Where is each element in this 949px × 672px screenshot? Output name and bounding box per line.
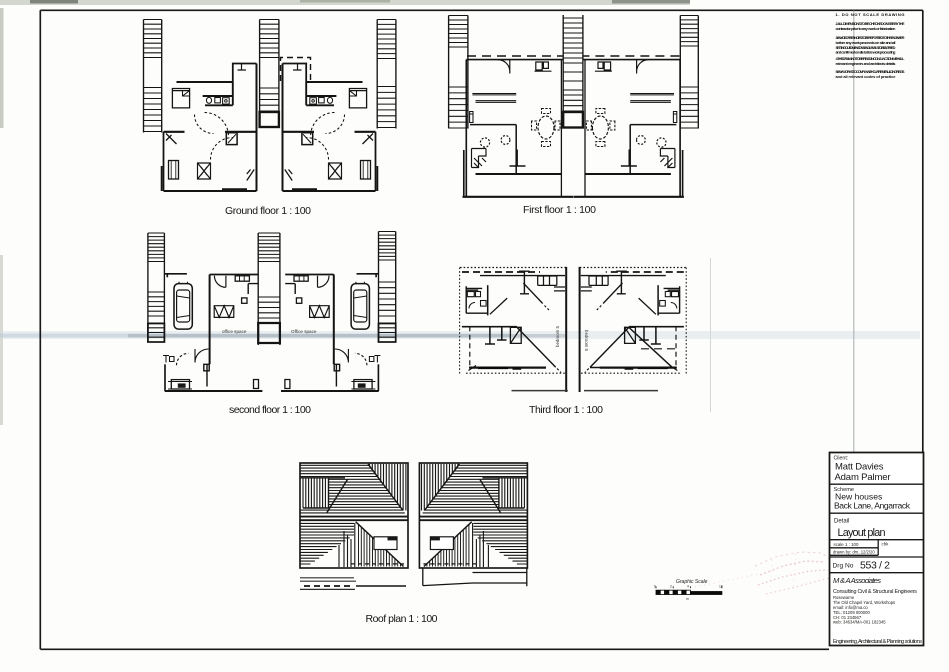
svg-text:Drg No: Drg No: [833, 563, 854, 570]
svg-text:Ground floor 1 : 100: Ground floor 1 : 100: [225, 205, 311, 217]
svg-text:Detail: Detail: [834, 519, 849, 525]
svg-text:chk: chk: [882, 542, 890, 547]
svg-text:10: 10: [719, 585, 723, 589]
svg-text:second floor 1 : 100: second floor 1 : 100: [229, 404, 311, 416]
svg-text:0: 0: [654, 585, 656, 589]
svg-text:First floor 1 : 100: First floor 1 : 100: [523, 204, 596, 216]
svg-text:contractor prior to any work o: contractor prior to any work or fabricat…: [836, 26, 897, 31]
svg-text:and confirmed on site before w: and confirmed on site before work procee…: [836, 50, 897, 55]
svg-text:m: m: [686, 597, 689, 601]
svg-text:Matt Davies: Matt Davies: [835, 461, 884, 472]
svg-text:office space: office space: [222, 329, 247, 334]
svg-text:web: 34634/MA-001 182345: web: 34634/MA-001 182345: [833, 620, 886, 625]
svg-text:Graphic Scale: Graphic Scale: [676, 579, 708, 585]
svg-text:Third floor 1 : 100: Third floor 1 : 100: [529, 404, 603, 416]
svg-text:bedroom 5: bedroom 5: [584, 330, 589, 352]
svg-text:Roof plan 1 : 100: Roof plan 1 : 100: [366, 613, 438, 625]
svg-text:Consulting Civil & Structural: Consulting Civil & Structural Engineers: [833, 589, 917, 595]
svg-text:relevant engineers and archite: relevant engineers and architects detail…: [836, 61, 897, 66]
svg-text:Adam Palmer: Adam Palmer: [835, 472, 891, 483]
svg-text:4: 4: [687, 585, 689, 589]
svg-text:bedroom 5: bedroom 5: [555, 325, 560, 347]
svg-text:scale 1 : 100: scale 1 : 100: [834, 542, 859, 547]
svg-text:1. DO NOT SCALE DRAWING: 1. DO NOT SCALE DRAWING: [836, 12, 905, 17]
svg-text:drawn by: drn, 12/2/20: drawn by: drn, 12/2/20: [833, 550, 875, 555]
svg-text:and all relevant codes of prac: and all relevant codes of practice: [836, 74, 897, 79]
svg-text:Back Lane, Angarrack: Back Lane, Angarrack: [834, 501, 911, 511]
svg-text:Engineering, Architectural & P: Engineering, Architectural & Planning so…: [833, 639, 922, 645]
svg-text:553 / 2: 553 / 2: [860, 560, 890, 572]
svg-text:M & A Associates: M & A Associates: [833, 576, 881, 585]
svg-text:Office space: Office space: [291, 329, 317, 334]
svg-text:Layout plan: Layout plan: [838, 527, 886, 539]
svg-text:2: 2: [670, 585, 672, 589]
